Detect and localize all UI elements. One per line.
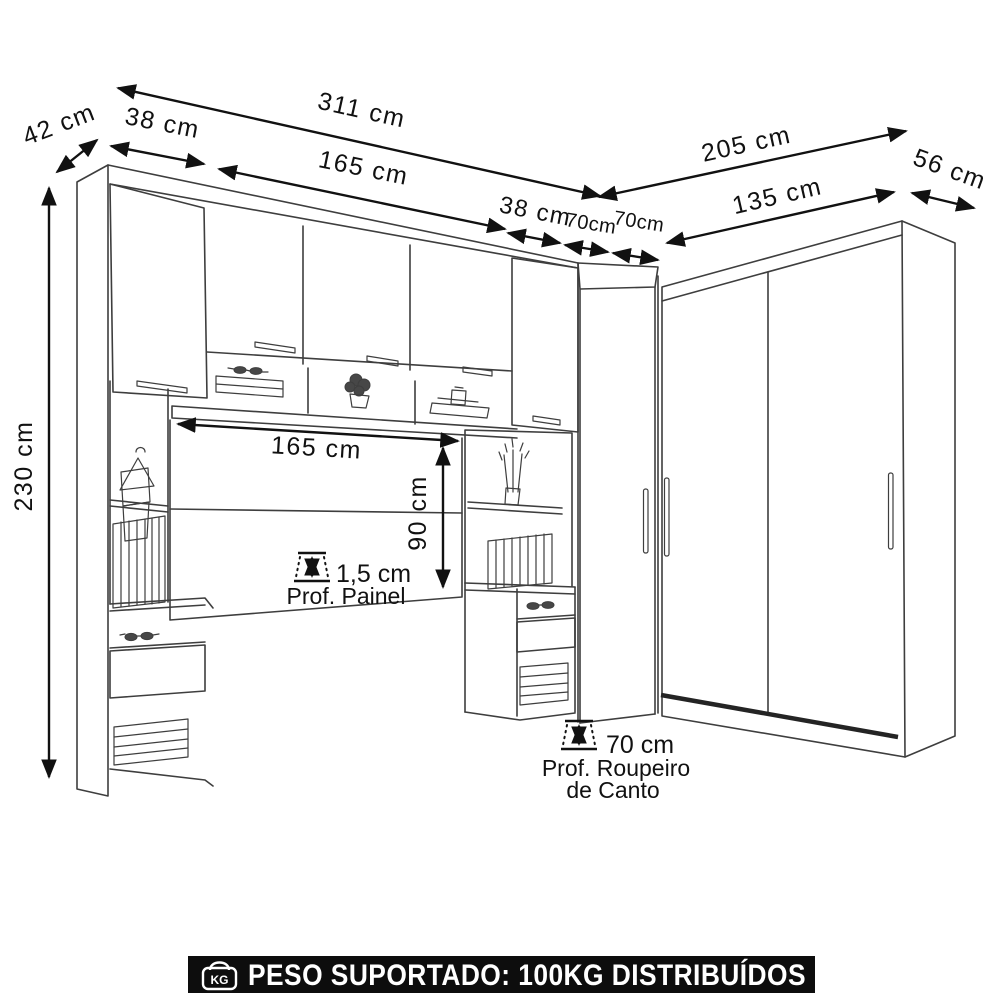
- decor-plant: [345, 374, 370, 408]
- decor-folded-clothes: [520, 663, 568, 705]
- right-shelf-column: [465, 430, 572, 589]
- diagram-canvas: 311 cm 42 cm 38 cm 165 cm 38 cm 70cm 70c…: [0, 0, 1000, 1000]
- depth-icon: [561, 721, 597, 749]
- dim-corner-b: 70cm: [612, 207, 666, 260]
- decor-tray-bottles: [430, 387, 489, 418]
- dim-label: 165 cm: [316, 145, 411, 191]
- door-handle: [644, 489, 649, 553]
- door-handle: [889, 473, 894, 549]
- weight-capacity-banner: KG PESO SUPORTADO: 100KG DISTRIBUÍDOS: [188, 956, 815, 993]
- dim-bridge-top: 165 cm: [219, 145, 505, 229]
- overhead-door-left: [110, 184, 207, 398]
- corner-depth-note: 70 cm Prof. Roupeiro de Canto: [542, 721, 690, 803]
- dim-label: 42 cm: [19, 98, 100, 151]
- dim-label: 311 cm: [315, 87, 408, 134]
- dim-label: 70cm: [612, 207, 666, 237]
- dimension-arrows: 311 cm 42 cm 38 cm 165 cm 38 cm 70cm 70c…: [10, 87, 990, 777]
- dim-right-total: 205 cm: [599, 121, 906, 197]
- decor-sunglasses: [120, 632, 159, 640]
- wardrobe-front: [662, 221, 905, 757]
- door-handle: [665, 478, 670, 556]
- left-lower-cabinet: [110, 598, 213, 786]
- kg-icon-label: KG: [211, 973, 229, 987]
- top-frame: [662, 235, 902, 301]
- dim-left-door: 38 cm: [111, 102, 204, 164]
- corner-wardrobe: [578, 263, 658, 723]
- dim-left-depth: 42 cm: [19, 98, 100, 172]
- door-handle: [137, 381, 187, 393]
- decor-folded-clothes: [114, 719, 188, 765]
- decor-books: [113, 516, 165, 608]
- left-wardrobe-unit: [77, 165, 578, 796]
- door-handle: [367, 356, 398, 366]
- dim-right-door: 38 cm: [497, 191, 574, 243]
- left-shelf-column: [110, 381, 168, 608]
- overhead-door-right: [512, 258, 578, 432]
- dim-label: 38 cm: [497, 191, 574, 231]
- decor-box-and-glasses: [216, 367, 283, 397]
- dim-label: 135 cm: [730, 172, 825, 220]
- right-side-panel: [902, 221, 955, 757]
- dim-label: 38 cm: [123, 102, 203, 144]
- dim-label: 70cm: [564, 209, 618, 239]
- dim-label: 230 cm: [10, 421, 38, 512]
- decor-sunglasses: [527, 602, 554, 610]
- corner-top-face: [578, 263, 658, 289]
- drawer-front: [517, 618, 575, 652]
- dim-label: 165 cm: [270, 431, 363, 465]
- door-handle: [533, 416, 560, 425]
- floor-track: [661, 695, 898, 737]
- decor-lavender-vase: [499, 439, 529, 505]
- left-side-panel: [77, 165, 108, 796]
- dim-label: 56 cm: [909, 143, 990, 195]
- dim-height: 230 cm: [10, 188, 49, 777]
- dim-label: 90 cm: [404, 475, 432, 551]
- furniture-dimension-diagram: 311 cm 42 cm 38 cm 165 cm 38 cm 70cm 70c…: [0, 0, 1000, 1000]
- drawer-front: [110, 645, 205, 698]
- banner-label: PESO SUPORTADO: 100KG DISTRIBUÍDOS: [248, 958, 806, 992]
- right-lower-cabinet: [465, 583, 575, 720]
- dim-wardrobe-depth: 56 cm: [909, 143, 990, 208]
- decor-books: [488, 534, 552, 589]
- door-handle: [255, 342, 295, 353]
- sliding-wardrobe: [658, 221, 955, 757]
- panel-depth-label: Prof. Painel: [287, 583, 406, 609]
- panel-depth-note: 1,5 cm Prof. Painel: [287, 553, 411, 609]
- dim-corner-a: 70cm: [564, 209, 618, 252]
- corner-depth-label-2: de Canto: [566, 777, 659, 803]
- dim-bed-width: 165 cm: [178, 424, 458, 465]
- depth-icon: [294, 553, 330, 581]
- dim-label: 205 cm: [699, 121, 794, 168]
